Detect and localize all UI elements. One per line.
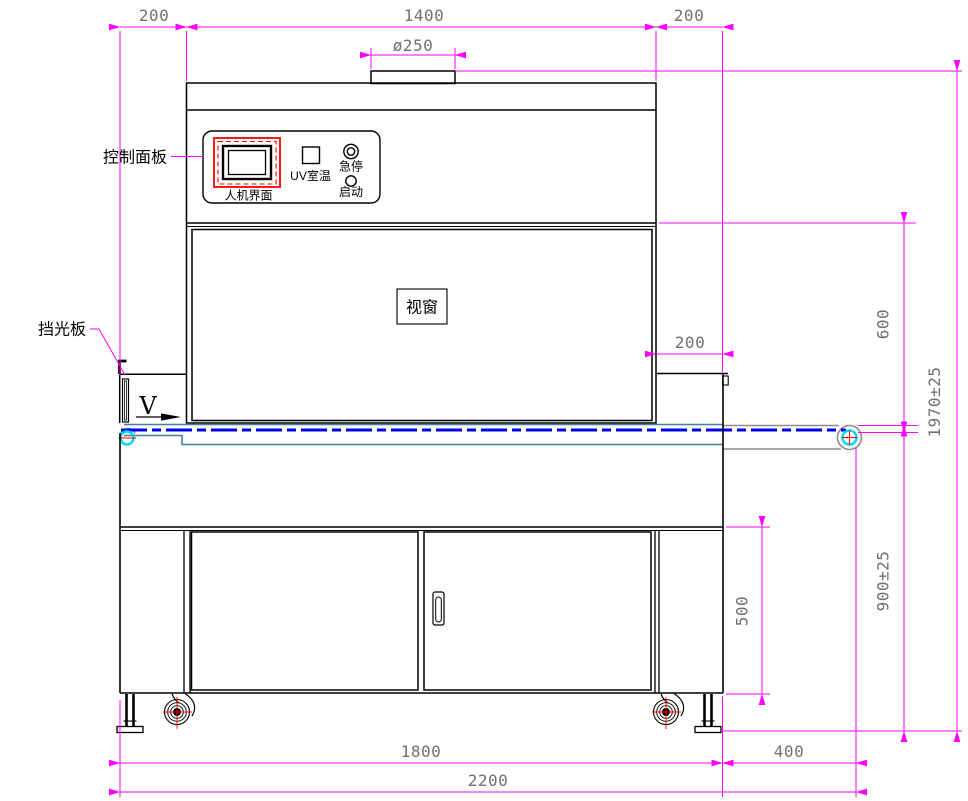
dim-belt-extension: 400	[774, 742, 804, 761]
leveling-foot-right	[695, 694, 721, 733]
direction-arrowhead	[161, 413, 181, 420]
cabinet-left-door	[192, 532, 419, 690]
dim-top-right: 200	[674, 6, 704, 25]
machine-stand	[120, 374, 723, 694]
window-outline	[192, 230, 652, 421]
cabinet-right-door	[424, 532, 651, 690]
start-label: 启动	[339, 185, 363, 199]
door-handle	[433, 592, 444, 625]
control-panel: 人机界面 UV室温 急停 启动	[203, 131, 380, 203]
caster-left	[163, 694, 195, 730]
uv-temp-label: UV室温	[290, 168, 331, 183]
window-label: 视窗	[406, 299, 438, 317]
light-shield-plate	[123, 379, 129, 422]
caster-right	[652, 694, 684, 730]
belt-frame	[120, 425, 723, 445]
exhaust-port	[371, 71, 455, 84]
hmi-screen	[214, 138, 280, 187]
dim-total-height: 1970±25	[925, 367, 944, 438]
control-panel-label: 控制面板	[103, 149, 167, 167]
belt-pulley-left	[119, 432, 137, 445]
hood-outline	[187, 83, 657, 423]
hmi-label: 人机界面	[224, 189, 272, 203]
uv-machine-front-view: 视窗 人机界面 UV室温 急停 启动	[0, 0, 968, 801]
dim-port-diameter: ø250	[393, 36, 434, 55]
machine-hood	[187, 71, 657, 423]
dim-body-width: 1800	[401, 742, 442, 761]
extension-lines	[90, 31, 962, 797]
dim-total-width: 2200	[468, 771, 509, 790]
dim-door-height: 500	[733, 596, 752, 626]
belt-exit	[656, 374, 728, 386]
window-label-box: 视窗	[397, 289, 447, 324]
estop-button: 急停	[339, 144, 363, 173]
leveling-foot-left	[117, 694, 143, 733]
dim-top-center: 1400	[404, 6, 445, 25]
start-button: 启动	[339, 176, 363, 199]
belt-direction-indicator: V	[136, 392, 181, 421]
dim-right-offset: 200	[675, 333, 705, 352]
belt-pulley-right	[842, 431, 857, 446]
uv-temp-button: UV室温	[290, 147, 331, 183]
dim-belt-height: 900±25	[874, 551, 893, 612]
estop-label: 急停	[339, 159, 363, 174]
conveyor-belt	[119, 425, 862, 450]
light-shield-label: 挡光板	[38, 321, 86, 339]
drawing-canvas: 视窗 人机界面 UV室温 急停 启动	[0, 0, 968, 801]
dim-top-left: 200	[139, 6, 169, 25]
direction-label: V	[138, 392, 157, 420]
dim-lamp-height: 600	[874, 309, 893, 339]
